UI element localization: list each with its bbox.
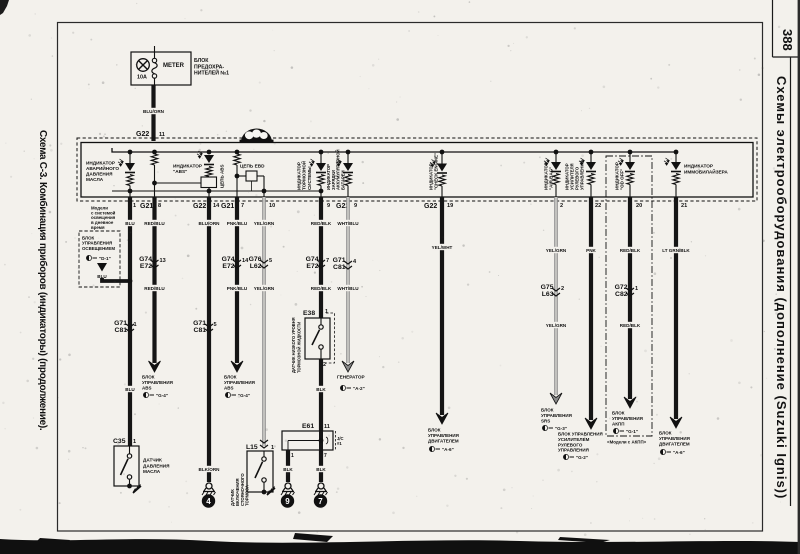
svg-text:2: 2 (323, 362, 326, 368)
svg-text:9: 9 (285, 497, 290, 506)
svg-text:WHT/BLU: WHT/BLU (337, 221, 359, 226)
svg-text:G21: G21 (140, 203, 153, 210)
svg-text:10: 10 (269, 203, 275, 209)
svg-text:RED/BLU: RED/BLU (144, 221, 165, 226)
svg-text:BLU/ORN: BLU/ORN (143, 109, 165, 114)
svg-text:ДВИГАТЕЛЕМ: ДВИГАТЕЛЕМ (428, 438, 459, 443)
svg-text:ТОРМОЗНОЙ: ТОРМОЗНОЙ (300, 161, 307, 190)
svg-text:"G-4": "G-4" (156, 393, 168, 398)
svg-text:C82: C82 (615, 291, 628, 298)
svg-text:8: 8 (158, 203, 161, 209)
svg-text:ИНДИКАТОР: ИНДИКАТОР (684, 164, 713, 169)
svg-text:ДАТЧИК НИЗКОГО УРОВНЯ: ДАТЧИК НИЗКОГО УРОВНЯ (291, 317, 296, 373)
svg-text:ТОРМОЗНОЙ ЖИДКОСТИ: ТОРМОЗНОЙ ЖИДКОСТИ (297, 322, 302, 373)
svg-text:PNK: PNK (586, 248, 596, 253)
svg-text:G22: G22 (193, 203, 206, 210)
svg-text:RED/BLK: RED/BLK (620, 248, 641, 253)
svg-text:Схема С-3. Комбинация приборов: Схема С-3. Комбинация приборов (индикато… (37, 130, 49, 431)
svg-text:PNK/BLU: PNK/BLU (227, 221, 248, 226)
svg-text:УПРАВЛЕНИЯ: УПРАВЛЕНИЯ (541, 413, 572, 418)
svg-text:RED/BLK: RED/BLK (620, 323, 641, 328)
svg-text:BLU: BLU (125, 221, 135, 226)
svg-text:BLK: BLK (283, 467, 293, 472)
svg-text:АВS: АВS (224, 385, 234, 390)
svg-text:L62: L62 (250, 263, 262, 270)
svg-text:7: 7 (318, 497, 323, 506)
svg-text:5: 5 (269, 258, 272, 264)
svg-text:БАТАРЕИ: БАТАРЕИ (340, 170, 345, 190)
svg-text:"D-1": "D-1" (99, 256, 111, 261)
svg-text:G21: G21 (221, 203, 234, 210)
svg-text:<Модели с АКПП>: <Модели с АКПП> (607, 439, 647, 444)
svg-text:L63: L63 (542, 291, 554, 298)
svg-text:SRS: SRS (541, 418, 550, 423)
svg-text:C81: C81 (333, 264, 346, 271)
svg-text:E72: E72 (222, 263, 234, 270)
svg-text:Е61: Е61 (302, 423, 314, 430)
svg-text:1: 1 (271, 445, 274, 451)
svg-text:РУЛЕВОГО: РУЛЕВОГО (558, 442, 583, 447)
svg-text:СИСТЕМЫ: СИСТЕМЫ (307, 166, 312, 190)
svg-text:E72: E72 (140, 263, 152, 270)
svg-text:L15: L15 (246, 444, 258, 451)
svg-text:МАСЛА: МАСЛА (86, 177, 104, 182)
svg-text:BLK/ORN: BLK/ORN (199, 467, 221, 472)
svg-text:1: 1 (325, 309, 328, 315)
svg-text:RED/BLK: RED/BLK (311, 286, 332, 291)
svg-text:G71: G71 (333, 257, 346, 264)
svg-text:7: 7 (326, 258, 329, 264)
svg-text:БЛОК УПРАВЛЕНИЯ: БЛОК УПРАВЛЕНИЯ (558, 432, 603, 437)
svg-text:YEL/GRN: YEL/GRN (546, 323, 567, 328)
svg-text:11: 11 (324, 424, 330, 430)
svg-text:БЛОК: БЛОК (142, 375, 155, 380)
svg-text:1: 1 (134, 322, 137, 328)
svg-text:УПРАВЛЕНИЯ: УПРАВЛЕНИЯ (142, 380, 173, 385)
svg-text:УПРАВЛЕНИЯ: УПРАВЛЕНИЯ (224, 380, 255, 385)
svg-text:ДАТЧИК: ДАТЧИК (143, 458, 162, 463)
svg-text:БЛОК: БЛОК (612, 411, 625, 416)
svg-text:УПРАВЛЕНИЯ: УПРАВЛЕНИЯ (659, 436, 690, 441)
svg-text:"AIR BAG": "AIR BAG" (549, 167, 554, 190)
svg-text:ГЕНЕРАТОР: ГЕНЕРАТОР (337, 375, 365, 380)
svg-text:"CHECK ENGINE": "CHECK ENGINE" (434, 153, 439, 190)
svg-text:ИММОБИЛАЙЗЕРА: ИММОБИЛАЙЗЕРА (684, 168, 728, 175)
svg-text:ИНДИКАТОР: ИНДИКАТОР (173, 164, 202, 169)
svg-text:АКПП: АКПП (612, 421, 624, 426)
svg-text:"А-6": "А-6" (673, 450, 685, 455)
svg-text:G71: G71 (114, 320, 127, 327)
svg-text:БЛОК: БЛОК (541, 408, 554, 413)
svg-text:2: 2 (560, 203, 563, 209)
svg-text:11: 11 (159, 132, 165, 138)
svg-text:БЛОК: БЛОК (194, 58, 209, 64)
svg-text:YEL/GRN: YEL/GRN (254, 221, 275, 226)
svg-text:1: 1 (133, 203, 136, 209)
svg-text:НИТЕЛЕЙ №1: НИТЕЛЕЙ №1 (194, 69, 229, 77)
svg-text:G22: G22 (136, 131, 149, 138)
svg-text:YEL/GRN: YEL/GRN (546, 248, 567, 253)
svg-text:C81: C81 (115, 327, 128, 334)
svg-text:G72: G72 (615, 284, 628, 291)
svg-text:20: 20 (636, 203, 642, 209)
svg-text:9: 9 (327, 203, 330, 209)
svg-text:ДВИГАТЕЛЕМ: ДВИГАТЕЛЕМ (659, 441, 690, 446)
svg-text:LT GRN/BLK: LT GRN/BLK (662, 248, 690, 253)
svg-text:BLU/ORN: BLU/ORN (199, 221, 221, 226)
svg-text:13: 13 (160, 258, 166, 264)
svg-text:388: 388 (780, 29, 795, 51)
svg-text:УПРАВЛЕНИЯ: УПРАВЛЕНИЯ (612, 416, 643, 421)
svg-text:Схемы электрооборудования (доп: Схемы электрооборудования (дополнение (S… (774, 76, 789, 499)
svg-text:1: 1 (133, 439, 136, 445)
svg-text:ДАВЛЕНИЯ: ДАВЛЕНИЯ (86, 172, 113, 177)
svg-text:19: 19 (447, 203, 453, 209)
svg-text:Е38: Е38 (303, 310, 315, 317)
svg-text:7: 7 (241, 203, 244, 209)
svg-text:ЦЕПЬ ЕВD: ЦЕПЬ ЕВD (240, 164, 265, 169)
svg-text:ИНДИКАТОР: ИНДИКАТОР (86, 161, 115, 166)
svg-text:WHT/BLU: WHT/BLU (337, 286, 359, 291)
svg-text:"G-1": "G-1" (626, 429, 638, 434)
svg-text:5: 5 (214, 322, 217, 328)
svg-text:METER: METER (163, 63, 185, 69)
svg-text:ПРЕДОХРА-: ПРЕДОХРА- (194, 64, 224, 70)
svg-text:время: время (91, 225, 105, 230)
svg-text:RED/BLK: RED/BLK (311, 221, 332, 226)
svg-text:G74: G74 (306, 256, 319, 263)
svg-text:"А-6": "А-6" (442, 447, 454, 452)
svg-text:G22: G22 (424, 203, 437, 210)
svg-text:G71: G71 (193, 320, 206, 327)
svg-text:"G-3": "G-3" (555, 426, 567, 431)
svg-text:УПРАВЛЕНИЯ: УПРАВЛЕНИЯ (428, 433, 459, 438)
svg-text:21: 21 (681, 203, 687, 209)
svg-text:ЦЕПЬ АВS: ЦЕПЬ АВS (220, 164, 225, 188)
svg-text:БЛОК: БЛОК (659, 431, 672, 436)
svg-text:BLK: BLK (316, 387, 326, 392)
svg-text:9: 9 (354, 203, 357, 209)
svg-text:E72: E72 (306, 263, 318, 270)
svg-text:22: 22 (595, 203, 601, 209)
svg-text:BLU: BLU (125, 387, 135, 392)
svg-text:2: 2 (561, 286, 564, 292)
svg-text:10A: 10A (137, 75, 147, 81)
svg-text:МАСЛА: МАСЛА (143, 469, 161, 474)
svg-text:G74: G74 (222, 256, 235, 263)
svg-text:YEL/GRN: YEL/GRN (254, 286, 275, 291)
svg-text:G76: G76 (249, 256, 262, 263)
svg-text:"OD OFF": "OD OFF" (620, 169, 625, 190)
svg-text:YEL/WHT: YEL/WHT (432, 245, 453, 250)
svg-text:RED/BLU: RED/BLU (144, 286, 165, 291)
svg-text:1: 1 (635, 286, 638, 292)
svg-text:АВАРИЙНОГО: АВАРИЙНОГО (86, 164, 119, 171)
svg-text:УПРАВЛЕНИЯ: УПРАВЛЕНИЯ (579, 160, 584, 190)
svg-text:C81: C81 (194, 327, 207, 334)
svg-text:БЛОК: БЛОК (224, 375, 237, 380)
svg-text:ТОРМОЗА: ТОРМОЗА (245, 485, 250, 506)
svg-text:УПРАВЛЕНИЯ: УПРАВЛЕНИЯ (558, 448, 589, 453)
svg-text:БЛОК: БЛОК (428, 428, 441, 433)
svg-text:"АВS": "АВS" (173, 169, 187, 174)
svg-text:1: 1 (291, 453, 294, 459)
svg-text:ОСВЕЩЕНИЕМ: ОСВЕЩЕНИЕМ (82, 246, 115, 251)
svg-text:G74: G74 (139, 256, 152, 263)
svg-text:"А-2": "А-2" (353, 386, 365, 391)
svg-text:14: 14 (213, 203, 220, 209)
svg-text:G75: G75 (541, 284, 554, 291)
svg-text:BLK: BLK (316, 467, 326, 472)
svg-text:PNK/BLU: PNK/BLU (227, 286, 248, 291)
svg-text:4: 4 (206, 497, 211, 506)
svg-text:ДАВЛЕНИЯ: ДАВЛЕНИЯ (143, 463, 170, 468)
svg-text:АВS: АВS (142, 385, 152, 390)
svg-text:"G-2": "G-2" (576, 455, 588, 460)
